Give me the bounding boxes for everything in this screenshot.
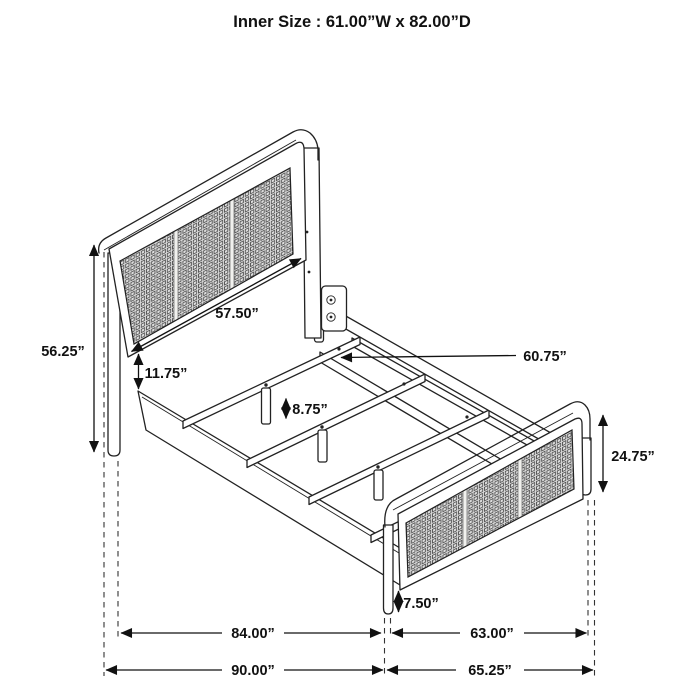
label-headboard-width: 57.50” — [215, 306, 259, 322]
bed-frame — [138, 303, 579, 585]
mesh-seam — [174, 226, 178, 324]
label-center-rail-length: 60.75” — [523, 349, 567, 365]
label-footboard-height: 24.75” — [611, 449, 655, 465]
slat — [183, 337, 360, 429]
label-footboard-clearance: 7.50” — [403, 596, 438, 612]
diagram-title: Inner Size : 61.00”W x 82.00”D — [233, 13, 471, 31]
rail-bracket — [322, 286, 347, 331]
support-leg — [318, 430, 327, 462]
label-headboard-gap: 11.75” — [145, 366, 188, 382]
label-slat-support-height: 8.75” — [292, 402, 327, 418]
label-outer-width: 65.25” — [468, 663, 512, 679]
footboard — [384, 402, 592, 614]
support-leg — [374, 470, 383, 500]
post-hole — [306, 231, 309, 234]
post-hole — [308, 271, 311, 274]
footboard-left-leg — [384, 525, 394, 614]
label-headboard-height: 56.25” — [41, 344, 85, 360]
product-dimension-diagram: Inner Size : 61.00”W x 82.00”D — [0, 0, 700, 700]
mesh-seam — [518, 455, 522, 522]
dim-leader-center-rail — [341, 356, 516, 358]
mesh-seam — [230, 193, 234, 292]
label-outer-length: 90.00” — [231, 663, 275, 679]
diagram-svg: Inner Size : 61.00”W x 82.00”D — [0, 0, 700, 700]
support-leg — [262, 388, 271, 424]
mesh-seam — [463, 486, 467, 552]
label-inner-length: 84.00” — [231, 626, 275, 642]
label-inner-width: 63.00” — [470, 626, 514, 642]
